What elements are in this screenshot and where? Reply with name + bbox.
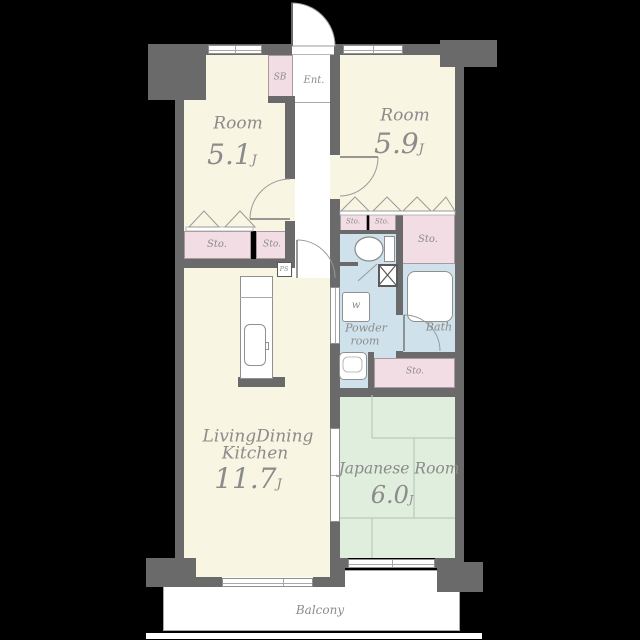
wall-under-mini-storage [340, 230, 396, 234]
shoe-box-label: SB [274, 74, 287, 83]
genkan-step-line [295, 102, 330, 103]
room-5-9-name: Room [380, 108, 429, 125]
doorway-room-5-1 [285, 179, 295, 221]
room-5-9-size: 5.9J [374, 130, 424, 158]
doorway-bath [396, 315, 403, 351]
powder-room-label-2: room [351, 336, 380, 347]
window-line [223, 583, 312, 584]
floor-plan: Room 5.1J Room 5.9J SB Ent. Sto. Sto. St… [0, 0, 640, 640]
window-divider [235, 46, 236, 53]
storage-label: Sto. [263, 241, 281, 250]
ldk-name-2: Kitchen [222, 446, 288, 463]
toilet-tank [384, 236, 395, 262]
storage-label: Sto. [346, 219, 360, 226]
window-divider [373, 46, 374, 53]
bath-label: Bath [426, 322, 452, 333]
bathtub [407, 271, 453, 322]
entrance-door-swing [292, 3, 335, 46]
wall-shoebox-stub [268, 96, 295, 103]
window-ldk [222, 578, 313, 587]
room-5-1-size-unit: J [252, 153, 257, 168]
japanese-room-size-unit: J [409, 493, 413, 506]
wall-ldk-bottom-left [172, 577, 222, 587]
entrance-label: Ent. [304, 76, 325, 86]
balcony-label: Balcony [296, 604, 344, 616]
wall-under-bath [396, 352, 455, 358]
japanese-room-size: 6.0J [371, 483, 414, 507]
japanese-room-name: Japanese Room [339, 461, 460, 477]
window-room-5-1 [208, 45, 262, 54]
room-5-9-size-unit: J [419, 142, 424, 157]
kitchen-sink-faucet [265, 342, 269, 350]
storage-label: Sto. [418, 235, 438, 245]
ldk-size: 11.7J [214, 465, 282, 493]
pillar-top-left [148, 44, 206, 100]
pillar-top-right [440, 40, 497, 67]
pipe-shaft-label: PS [280, 266, 289, 273]
wall-jr-top [330, 388, 464, 397]
entrance-doorway [292, 44, 334, 55]
balcony-rail [146, 633, 482, 639]
window-japanese-room [348, 559, 435, 568]
wall-hall-right-mid [330, 199, 340, 287]
japanese-room-size-value: 6.0 [371, 481, 409, 509]
entrance-hall-floor [293, 55, 332, 278]
wall-hall-left-upper [285, 99, 295, 179]
kitchen-sink [244, 324, 266, 366]
ldk-size-unit: J [277, 477, 282, 492]
window-room-5-9 [343, 45, 403, 54]
wall-step [337, 558, 345, 587]
powder-room-label-1: Powder [345, 323, 387, 334]
storage-label: Sto. [375, 219, 389, 226]
storage-label: Sto. [406, 368, 424, 377]
washing-machine-label: w [352, 301, 361, 311]
doorway-room-5-9 [330, 155, 340, 199]
wall-hall-right-upper [330, 44, 340, 155]
ldk-size-value: 11.7 [214, 462, 276, 495]
washbasin [339, 352, 367, 380]
storage-label: Sto. [207, 240, 227, 250]
pipe-space-x-box [378, 264, 398, 287]
room-5-1-size: 5.1J [207, 141, 257, 169]
room-5-1-name: Room [213, 116, 262, 133]
wall-toilet-bottom [340, 262, 358, 266]
sliding-door-powder [330, 287, 340, 344]
wall-jr-bottom-right [435, 558, 464, 568]
window-divider [392, 560, 393, 567]
wall-right [455, 44, 464, 570]
wall-storage-bottom-left [368, 352, 374, 390]
room-5-1-size-value: 5.1 [207, 138, 252, 171]
window-divider [283, 579, 284, 586]
room-5-9-size-value: 5.9 [374, 127, 419, 160]
kitchen-counter-divider [240, 297, 273, 298]
sliding-door-powder-line [335, 288, 336, 343]
doorway-toilet [358, 262, 378, 266]
wall-left [175, 44, 184, 587]
